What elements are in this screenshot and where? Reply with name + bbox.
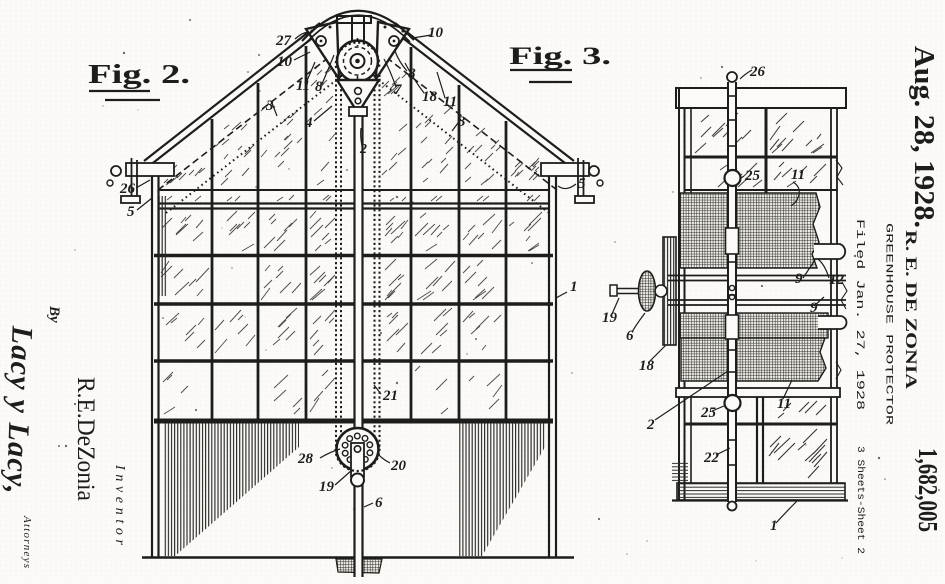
svg-text:19: 19: [319, 479, 335, 495]
svg-text:25: 25: [700, 405, 717, 421]
svg-text:21: 21: [382, 388, 398, 404]
svg-text:25: 25: [744, 168, 761, 184]
svg-text:11: 11: [296, 78, 310, 94]
svg-text:GREENHOUSE PROTECTOR: GREENHOUSE PROTECTOR: [883, 223, 895, 426]
svg-text:19: 19: [602, 310, 618, 326]
svg-text:1: 1: [770, 518, 778, 534]
svg-text:10: 10: [428, 25, 444, 41]
svg-text:12: 12: [829, 272, 845, 288]
svg-text:22: 22: [703, 450, 720, 466]
svg-text:5: 5: [578, 176, 586, 192]
svg-text:26: 26: [119, 181, 136, 197]
svg-text:28: 28: [297, 451, 314, 467]
svg-text:11: 11: [777, 396, 791, 412]
svg-text:9: 9: [795, 271, 803, 287]
svg-text:Aug. 28, 1928.: Aug. 28, 1928.: [908, 46, 940, 228]
svg-text:2: 2: [646, 417, 655, 433]
svg-text:18: 18: [639, 358, 655, 374]
svg-text:1,682,005: 1,682,005: [913, 448, 943, 532]
svg-text:5: 5: [127, 204, 135, 220]
svg-text:Filed Jan. 27, 1928: Filed Jan. 27, 1928: [853, 219, 865, 410]
svg-text:1: 1: [570, 279, 578, 295]
svg-text:R.E.DeZonia: R.E.DeZonia: [72, 377, 99, 501]
svg-text:10: 10: [277, 54, 293, 70]
svg-text:Fig. 2.: Fig. 2.: [88, 59, 190, 89]
svg-text:4: 4: [304, 115, 313, 131]
svg-text:9: 9: [810, 300, 818, 316]
svg-text:26: 26: [749, 64, 766, 80]
svg-text:R. E. DE ZONIA: R. E. DE ZONIA: [902, 230, 919, 390]
svg-text:By: By: [46, 305, 62, 323]
svg-text:20: 20: [390, 458, 407, 474]
svg-text:18: 18: [422, 89, 438, 105]
svg-text:11: 11: [791, 167, 805, 183]
svg-text:2: 2: [359, 142, 367, 157]
svg-text:6: 6: [375, 495, 383, 511]
svg-text:3 Sheets-Sheet 2: 3 Sheets-Sheet 2: [854, 446, 866, 554]
svg-text:8: 8: [315, 79, 323, 95]
svg-text:Lacy y Lacy,: Lacy y Lacy,: [0, 324, 39, 494]
svg-text:27: 27: [275, 33, 292, 49]
svg-text:Fig. 3.: Fig. 3.: [509, 43, 611, 70]
